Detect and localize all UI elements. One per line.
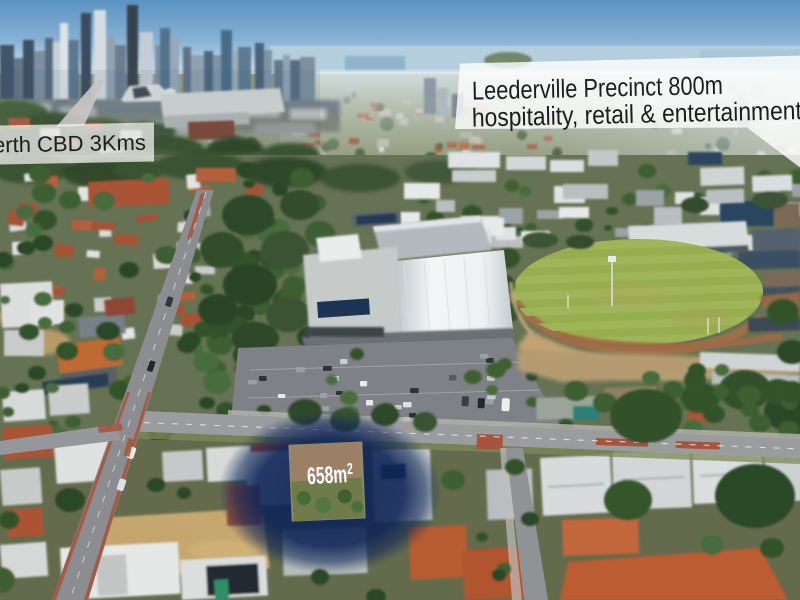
svg-text:658m2: 658m2 (306, 461, 353, 490)
svg-text:erth CBD 3Kms: erth CBD 3Kms (0, 130, 146, 158)
